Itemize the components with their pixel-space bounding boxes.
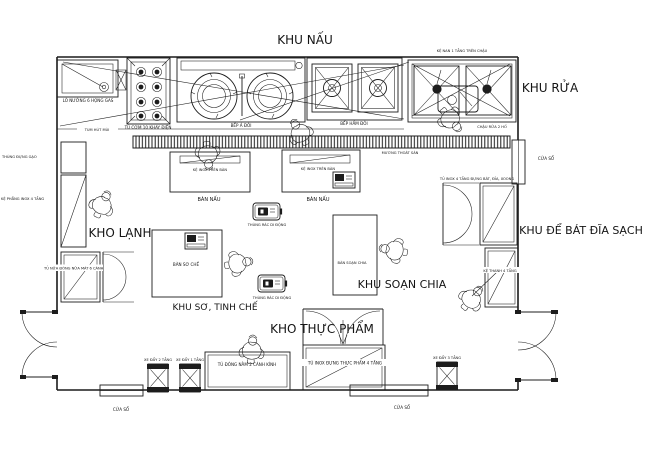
bar-shelf xyxy=(472,248,518,307)
worker-cold-store xyxy=(85,186,120,223)
label-kho-thuc-pham: KHO THỰC PHẨM xyxy=(270,320,374,336)
window-right: CỬA SỔ xyxy=(512,140,554,184)
worker-prep-table xyxy=(222,248,255,278)
trolley-1-label: XE ĐẨY 1 TẦNG xyxy=(176,357,204,362)
worker-food-store xyxy=(238,334,265,365)
trash-bin-label: THÙNG RÁC DI ĐỘNG xyxy=(252,295,292,300)
trolley-1-tier xyxy=(179,364,201,392)
wok-stove xyxy=(177,58,305,122)
dish-cabinet-label: TỦ INOX 4 TẦNG ĐỰNG BÁT, ĐĨA, XOONG xyxy=(439,176,514,181)
drain-label: MƯƠNG THOÁT SÀN xyxy=(382,150,419,155)
window-bottom-left: CỬA SỔ xyxy=(100,385,143,412)
cook-table-1: KỆ INOX TRÊN BÀN xyxy=(170,152,250,192)
prep-area: BÀN SƠ CHẾ THÙNG RÁC DI ĐỘNG xyxy=(152,230,292,300)
stock-stove-label: BẾP HẦM ĐÔI xyxy=(340,120,367,126)
cad-kitchen-floor-plan: TUM HÚT MÙI LÒ NƯỚNG 6 HỌNG GAS xyxy=(0,0,650,454)
worker-plating-table xyxy=(377,235,410,265)
rice-bin-cabinet xyxy=(61,142,86,173)
chest-freezer xyxy=(205,352,290,390)
cooking-line: LÒ NƯỚNG 6 HỌNG GAS TỦ CƠM 10 KHAY ĐIỆN xyxy=(57,58,402,130)
cook-table-1-label: BÀN NẤU xyxy=(197,195,220,203)
room-walls xyxy=(57,57,518,390)
label-khu-soan-chia: KHU SOẠN CHIA xyxy=(358,278,447,291)
chest-freezer-label: TỦ ĐÔNG NẰM 2 CÁNH KÍNH xyxy=(217,362,276,367)
title-khu-nau: KHU NẤU xyxy=(277,31,332,47)
gas-oven xyxy=(57,60,126,97)
label-khu-so-tinh-che: KHU SƠ, TINH CHẾ xyxy=(172,301,257,313)
flat-shelf-label: KỆ PHẲNG INOX 4 TẦNG xyxy=(1,196,44,201)
rice-bin-label: THÙNG ĐỰNG GẠO xyxy=(1,154,37,159)
right-double-door xyxy=(515,310,558,382)
trash-bin-1: THÙNG RÁC DI ĐỘNG xyxy=(247,203,287,227)
window-bottom-right: CỬA SỔ xyxy=(350,385,428,410)
left-double-door xyxy=(20,310,58,379)
prep-table-label: BÀN SƠ CHẾ xyxy=(173,261,200,267)
rice-cabinet xyxy=(127,58,170,124)
window-right-label: CỬA SỔ xyxy=(538,156,554,161)
cook-table-2-label: BÀN NẤU xyxy=(306,195,329,203)
trash-bin-2: THÙNG RÁC DI ĐỘNG xyxy=(252,275,292,300)
freezer-cooler-label: TỦ NỬA ĐÔNG NỬA MÁT 6 CÁNH xyxy=(43,266,104,271)
rice-cabinet-burners xyxy=(136,67,161,120)
faucet-right xyxy=(482,84,491,93)
wok-stove-label: BẾP Á ĐÔI xyxy=(231,122,252,128)
label-khu-de-bat-dia-sach: KHU ĐỂ BÁT ĐĨA SẠCH xyxy=(519,223,643,237)
trolley-2-label: XE ĐẨY 2 TẦNG xyxy=(144,357,172,362)
dish-cabinet xyxy=(443,183,517,245)
trolley-3-label: XE ĐẨY 3 TẦNG xyxy=(433,355,461,360)
work-tables: KỆ INOX TRÊN BÀN BÀN NẤU KỆ INOX TRÊN BÀ… xyxy=(170,150,360,227)
freezer-cooler-cabinet xyxy=(61,252,134,302)
bar-shelf-label: KỆ THANH 4 TẦNG xyxy=(483,268,516,273)
dish-storage: TỦ INOX 4 TẦNG ĐỰNG BÁT, ĐĨA, XOONG KỆ T… xyxy=(439,176,519,307)
window-bottom-right-label: CỬA SỔ xyxy=(394,405,410,410)
label-kho-lanh: KHO LẠNH xyxy=(88,226,151,240)
plating-table-label: BÀN SOẠN CHIA xyxy=(338,260,367,265)
cook-table-2: KỆ INOX TRÊN BÀN xyxy=(282,150,360,192)
floor-plan-canvas: TUM HÚT MÙI LÒ NƯỚNG 6 HỌNG GAS xyxy=(0,0,650,454)
food-cabinet-label: TỦ INOX ĐỰNG THỰC PHẨM 4 TẦNG xyxy=(307,361,382,366)
sink-label: CHẬU RỬA 2 HỐ xyxy=(477,124,507,129)
sink-shelf-label: KỆ NAN 1 TẦNG TRÊN CHẬU xyxy=(437,48,488,53)
left-storage: THÙNG ĐỰNG GẠO KỆ PHẲNG INOX 4 TẦNG TỦ N… xyxy=(1,142,134,302)
window-bottom-left-label: CỬA SỔ xyxy=(113,407,129,412)
trolley-2-tier xyxy=(147,364,169,392)
sink-area: KỆ NAN 1 TẦNG TRÊN CHẬU CHẬU RỬA 2 HỐ xyxy=(408,48,516,129)
table-shelf-label: KỆ INOX TRÊN BÀN xyxy=(301,166,335,171)
trolley-3-tier xyxy=(436,362,458,390)
trash-bin-label: THÙNG RÁC DI ĐỘNG xyxy=(247,222,287,227)
label-khu-rua: KHU RỬA xyxy=(522,79,579,95)
hood-label: TUM HÚT MÙI xyxy=(84,127,110,132)
rice-cabinet-label: TỦ CƠM 10 KHAY ĐIỆN xyxy=(124,125,172,130)
gas-oven-label: LÒ NƯỚNG 6 HỌNG GAS xyxy=(63,98,114,103)
